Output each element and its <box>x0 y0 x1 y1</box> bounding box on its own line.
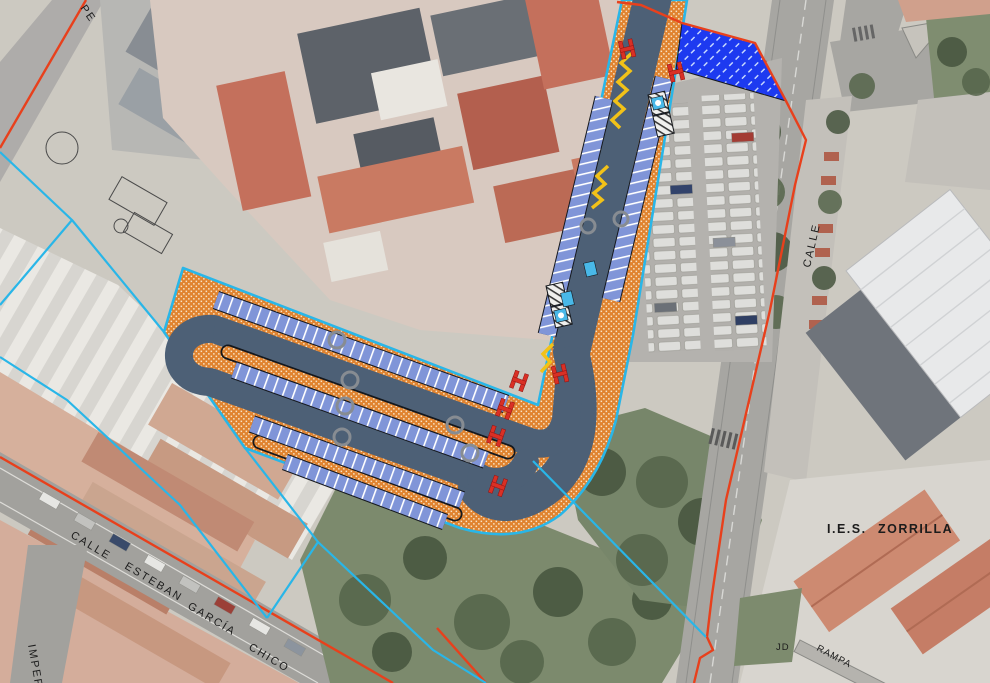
site-plan-map: PE CALLE CALLE ESTEBAN GARCÍA CHICO IMPE… <box>0 0 990 683</box>
school-label-ies: I.E.S. <box>827 522 867 536</box>
aerial-plan-canvas: PE CALLE CALLE ESTEBAN GARCÍA CHICO IMPE… <box>0 0 990 683</box>
school-label-zorrilla: ZORRILLA <box>878 522 953 536</box>
green-jd <box>734 588 802 666</box>
label-jd: JD <box>776 642 790 653</box>
